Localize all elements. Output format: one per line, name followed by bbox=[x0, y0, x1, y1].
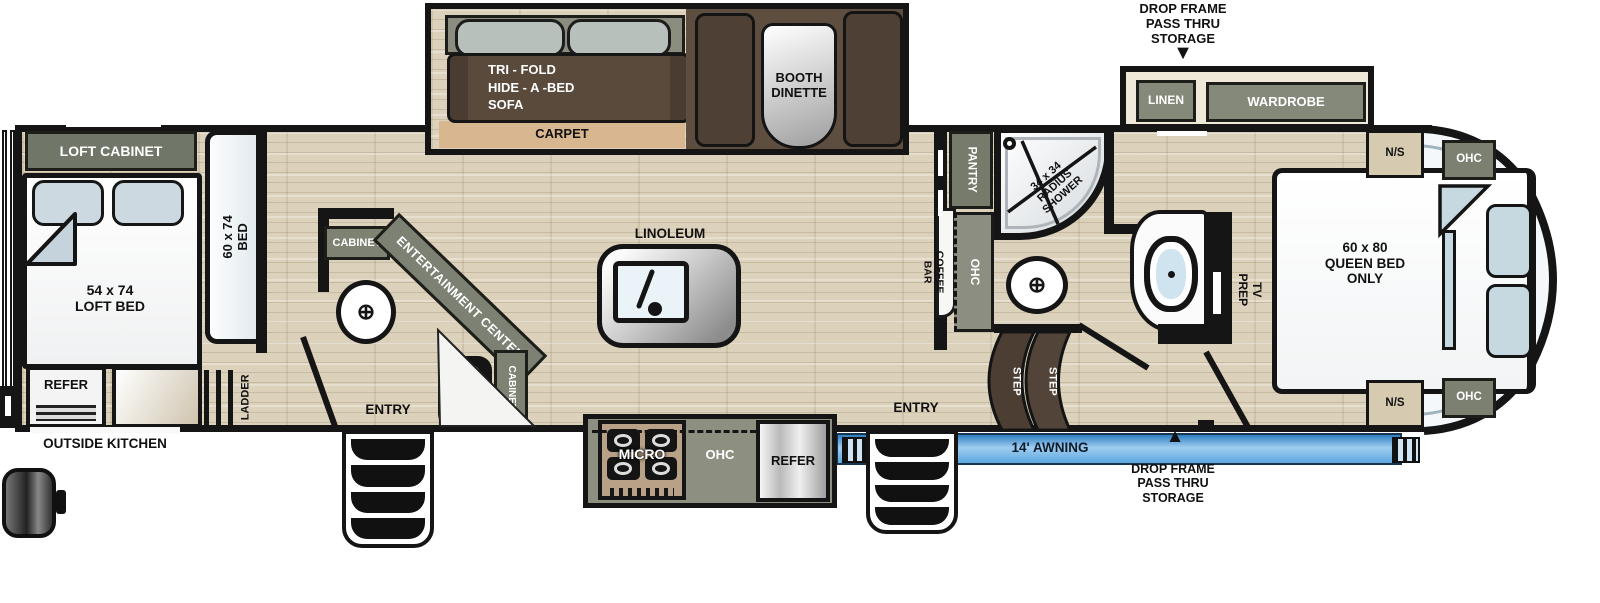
bedroom-ohc: OHC bbox=[1442, 140, 1496, 180]
loft-ladder-rungs bbox=[204, 370, 236, 428]
outside-kitchen-counter bbox=[112, 366, 202, 428]
dinette-bench bbox=[695, 13, 755, 147]
loft-bed-label: 54 x 74 LOFT BED bbox=[45, 282, 175, 314]
step-tread bbox=[351, 465, 425, 486]
step-tread bbox=[875, 485, 949, 503]
coffee-bar-label: COFFEE BAR bbox=[921, 251, 945, 294]
rear-wall bbox=[256, 128, 267, 353]
coffee-ohc-label: OHC bbox=[967, 259, 981, 286]
step-1-label: STEP bbox=[1010, 367, 1023, 396]
step-tread bbox=[351, 439, 425, 460]
toilet-cross-icon: ⊕ bbox=[1028, 272, 1046, 298]
bed-pillow bbox=[1486, 284, 1532, 358]
awning-label: 14' AWNING bbox=[960, 440, 1140, 456]
wardrobe-label: WARDROBE bbox=[1247, 95, 1324, 110]
shower-label: 34 x 34 RADIUS SHOWER bbox=[1024, 155, 1086, 216]
refer-vent bbox=[36, 405, 97, 421]
wall-window bbox=[938, 150, 943, 176]
kitchen-refer-label: REFER bbox=[771, 454, 815, 469]
tv-prep: TV PREP bbox=[1238, 238, 1260, 342]
step-tread bbox=[875, 462, 949, 480]
entry-steps bbox=[866, 430, 958, 534]
toilet-cross-icon: ⊕ bbox=[357, 299, 375, 325]
drop-frame-bottom-label: DROP FRAME PASS THRU STORAGE bbox=[1098, 462, 1248, 505]
drop-frame-top-label: DROP FRAME PASS THRU STORAGE bbox=[1108, 2, 1258, 47]
loft-cabinet-label: LOFT CABINET bbox=[60, 143, 163, 159]
rear-refer-label: REFER bbox=[30, 378, 102, 393]
step-tread bbox=[875, 439, 949, 457]
step-2-label: STEP bbox=[1046, 367, 1059, 396]
arrow-up-icon: ▲ bbox=[1160, 426, 1190, 448]
kitchen-ohc-label: OHC bbox=[688, 448, 752, 463]
ladder-bracket-slot bbox=[5, 396, 11, 416]
nightstand-label: N/S bbox=[1385, 397, 1404, 410]
pantry-label: PANTRY bbox=[964, 147, 977, 193]
rear-refer: REFER bbox=[26, 366, 106, 428]
tv-cabinet-slot bbox=[1213, 272, 1221, 314]
wall-window bbox=[66, 121, 161, 127]
wardrobe-slideout: LINEN WARDROBE bbox=[1120, 66, 1374, 130]
step-tread bbox=[351, 492, 425, 513]
nightstand-label: N/S bbox=[1385, 147, 1404, 160]
floorplan-canvas: LOFT CABINET 54 x 74 LOFT BED 60 x 74 BE… bbox=[0, 0, 1600, 603]
ladder-label: LADDER bbox=[240, 374, 253, 420]
queen-bed-label: 60 x 80 QUEEN BED ONLY bbox=[1290, 240, 1440, 287]
dinette-bench bbox=[843, 11, 903, 147]
vanity-drain bbox=[1168, 271, 1175, 278]
bedroom-ohc-label: OHC bbox=[1456, 391, 1482, 404]
linen-label: LINEN bbox=[1148, 94, 1184, 108]
coffee-bar: COFFEE BAR bbox=[918, 215, 948, 330]
cabinet-lower-label: CABINET bbox=[505, 366, 517, 410]
linoleum-label: LINOLEUM bbox=[600, 226, 740, 242]
entry-steps bbox=[342, 430, 434, 548]
blanket-edge bbox=[1442, 230, 1456, 350]
pantry: PANTRY bbox=[949, 131, 993, 209]
bedroom-ohc: OHC bbox=[1442, 378, 1496, 418]
loft-pillow bbox=[112, 180, 184, 226]
rear-ladder-rail bbox=[2, 130, 7, 395]
grill-handle bbox=[56, 490, 66, 514]
loft-pillow bbox=[32, 180, 104, 226]
entry-left-label: ENTRY bbox=[346, 402, 430, 418]
wall-window bbox=[938, 190, 943, 216]
coffee-ohc: OHC bbox=[954, 212, 994, 332]
sofa-back-cushion bbox=[567, 19, 671, 57]
sofa-dinette-slideout: CARPET OHC TRI - FOLD HIDE - A -BED SOFA… bbox=[425, 3, 909, 155]
sofa-label: TRI - FOLD HIDE - A -BED SOFA bbox=[488, 61, 688, 114]
outside-kitchen-door bbox=[30, 427, 180, 433]
kitchen-ohc-dash bbox=[592, 430, 756, 433]
island-sink bbox=[613, 261, 689, 323]
outside-kitchen-label: OUTSIDE KITCHEN bbox=[36, 436, 174, 452]
bedroom-wall-stub bbox=[1198, 420, 1214, 432]
tv-cabinet-base bbox=[1158, 324, 1232, 344]
rear-ladder-rail bbox=[10, 130, 15, 395]
loft-ladder: LADDER bbox=[236, 366, 256, 428]
toilet: ⊕ bbox=[1006, 256, 1068, 314]
bath-wall bbox=[318, 208, 394, 219]
step-2: STEP bbox=[1038, 350, 1066, 412]
carpet-strip: CARPET bbox=[439, 121, 685, 148]
entry-right-label: ENTRY bbox=[876, 400, 956, 416]
tv-prep-label: TV PREP bbox=[1235, 274, 1263, 307]
rear-bed-label: 60 x 74 BED bbox=[221, 215, 251, 258]
toilet: ⊕ bbox=[336, 280, 396, 344]
med-label: MED bbox=[459, 381, 471, 403]
carpet-label: CARPET bbox=[535, 127, 588, 142]
bath-bottom-wall bbox=[994, 324, 1082, 333]
stove-vent bbox=[610, 488, 674, 498]
step-1: STEP bbox=[1002, 350, 1030, 412]
awning-bracket bbox=[1392, 437, 1420, 463]
tri-fold-sofa: TRI - FOLD HIDE - A -BED SOFA bbox=[447, 53, 691, 123]
wardrobe-cabinet: WARDROBE bbox=[1206, 82, 1366, 122]
wall-window bbox=[1157, 131, 1207, 136]
step-tread bbox=[875, 507, 949, 525]
arrow-down-icon: ▼ bbox=[1165, 42, 1201, 65]
cabinet-lower: CABINET bbox=[494, 350, 528, 426]
dinette-table: BOOTH DINETTE bbox=[761, 23, 837, 149]
booth-dinette-label: BOOTH DINETTE bbox=[771, 71, 827, 101]
propane-grill bbox=[2, 468, 56, 538]
bedroom-ohc-label: OHC bbox=[1456, 153, 1482, 166]
loft-cabinet: LOFT CABINET bbox=[25, 131, 197, 171]
linen-cabinet: LINEN bbox=[1136, 80, 1196, 122]
shower-text-wrap: 34 x 34 RADIUS SHOWER bbox=[1002, 142, 1108, 230]
micro-label: MICRO bbox=[598, 446, 686, 462]
kitchen-refer: REFER bbox=[756, 420, 830, 502]
nightstand: N/S bbox=[1366, 380, 1424, 428]
nightstand: N/S bbox=[1366, 130, 1424, 178]
bed-pillow bbox=[1486, 204, 1532, 278]
step-tread bbox=[351, 518, 425, 539]
sofa-back-cushion bbox=[455, 19, 565, 57]
med-sink: MED bbox=[445, 363, 485, 421]
